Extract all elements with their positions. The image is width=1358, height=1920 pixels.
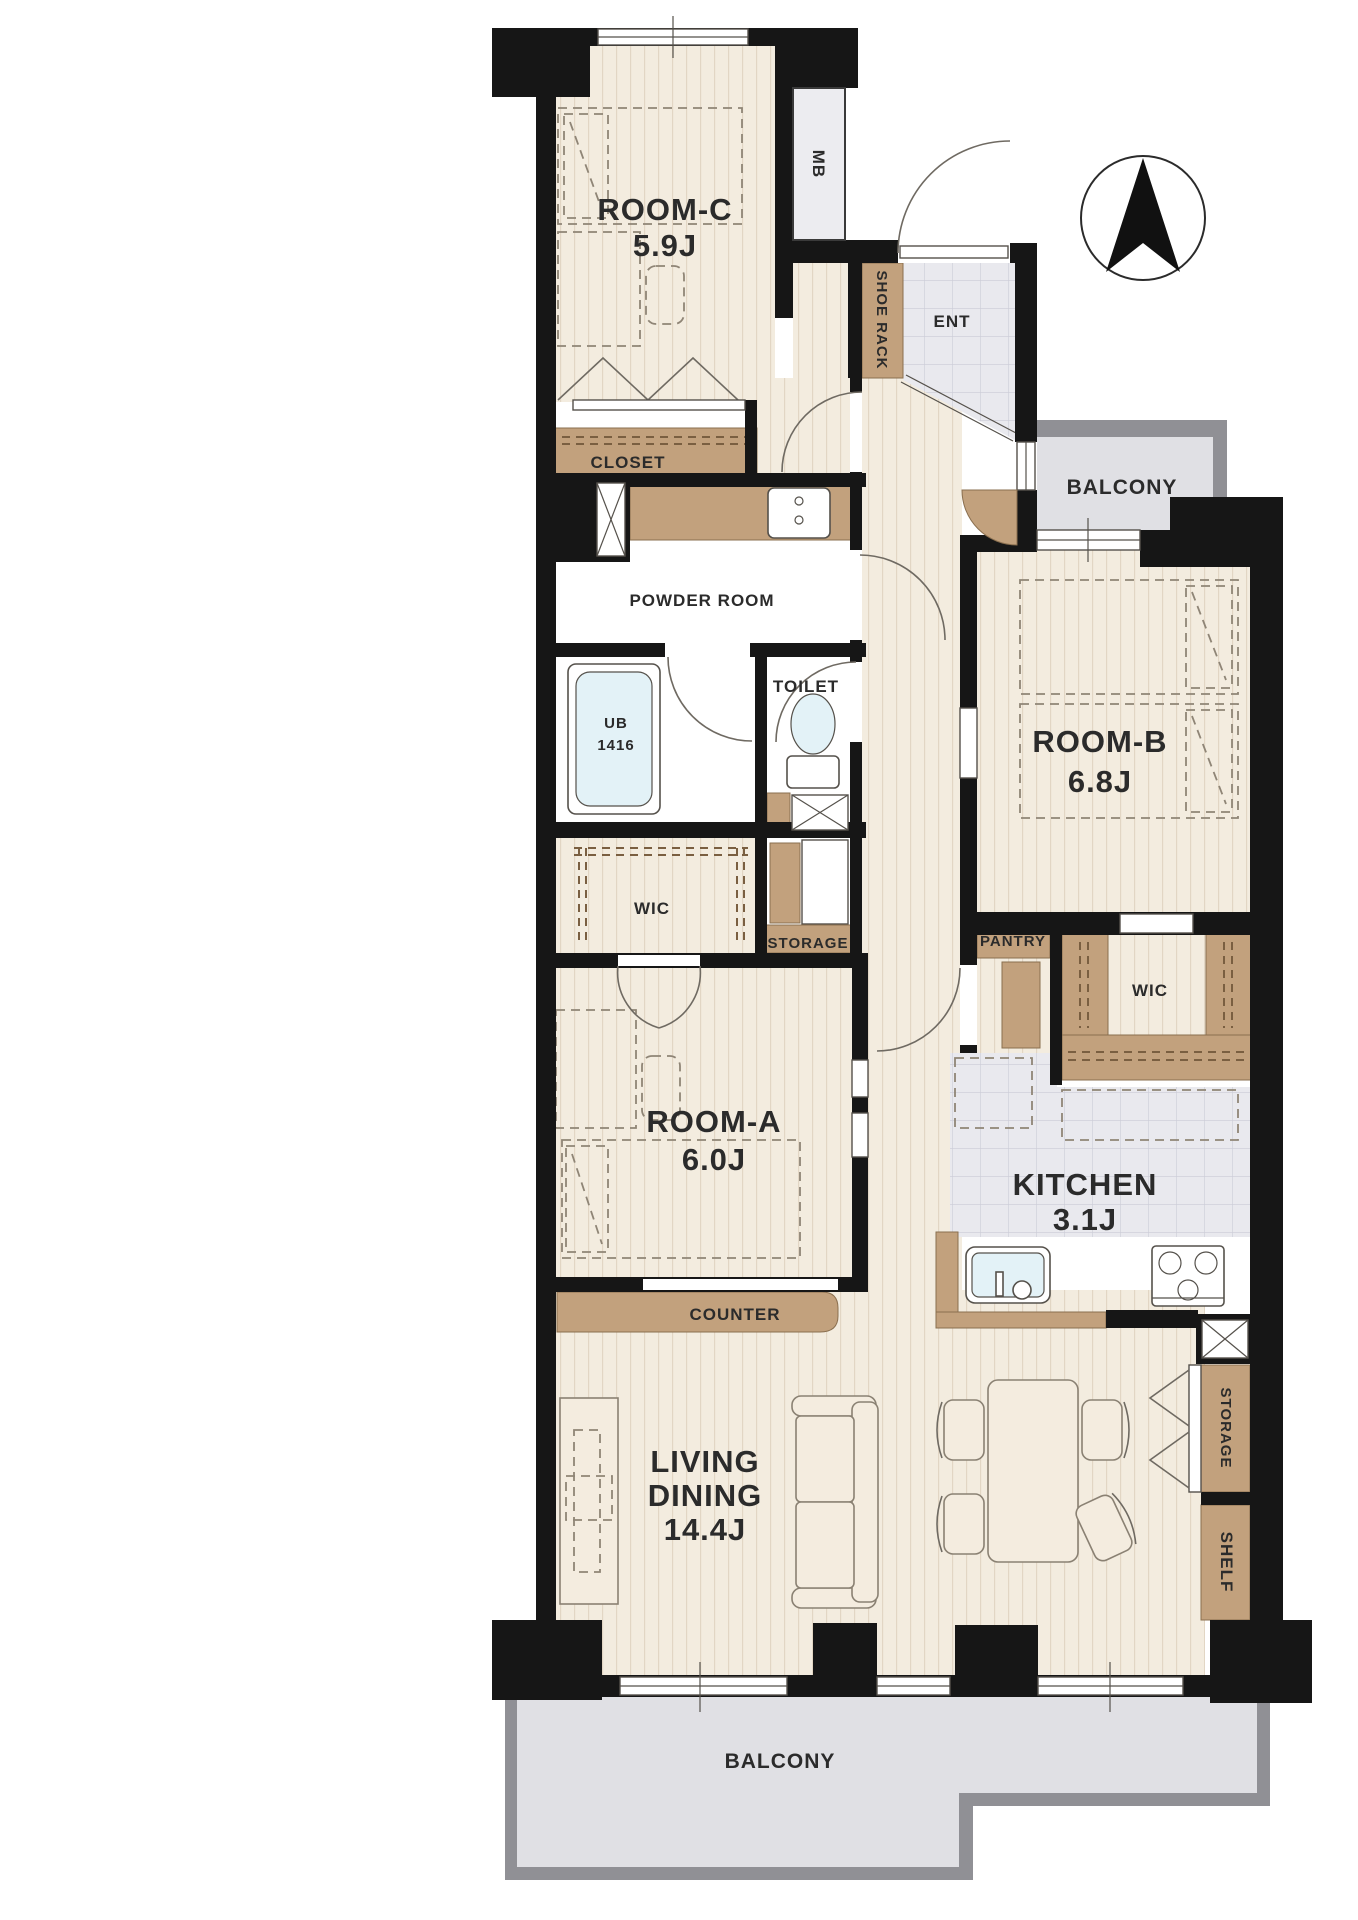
window-ld-2: [877, 1677, 950, 1695]
room-a-label: ROOM-A: [646, 1104, 781, 1139]
balcony-bottom: [517, 1697, 1257, 1867]
pantry-shelf: [1002, 962, 1040, 1048]
powder-room-label: POWDER ROOM: [629, 591, 774, 610]
pillar: [1210, 1620, 1312, 1703]
balcony-right-label: BALCONY: [1067, 476, 1178, 499]
corridor-floor: [856, 378, 962, 1310]
storage-a-label: STORAGE: [768, 935, 849, 952]
entry-door: [898, 243, 1010, 263]
dining-table: [988, 1380, 1078, 1562]
sofa: [792, 1396, 878, 1608]
pillar: [813, 1623, 877, 1697]
kitchen-duct-box: [1202, 1320, 1248, 1358]
vanity-basin: [768, 488, 830, 538]
counter-label: COUNTER: [689, 1305, 780, 1324]
wic-b-bottom-shelf: [1062, 1035, 1252, 1080]
closet-label: CLOSET: [591, 453, 666, 472]
balcony-right-border: [1037, 420, 1227, 437]
wic-b-right-shelf: [1206, 918, 1252, 1035]
dining-label: DINING: [648, 1478, 763, 1513]
pantry-label: PANTRY: [980, 933, 1046, 950]
dining-chair: [937, 1400, 984, 1460]
stove: [1152, 1246, 1224, 1306]
tv-board: [560, 1398, 618, 1604]
entry-door-swing: [898, 141, 1010, 253]
room-b-label: ROOM-B: [1032, 724, 1167, 759]
hall-strip-floor: [793, 263, 850, 383]
toilet-duct-box: [792, 795, 848, 830]
floor-plan: ROOM-C 5.9J ROOM-B 6.8J ROOM-A 6.0J LIVI…: [0, 0, 1358, 1920]
shelf-label: SHELF: [1217, 1532, 1236, 1593]
kitchen-counter-cap: [936, 1232, 958, 1318]
toilet-fixture: [787, 694, 839, 788]
compass: [1081, 156, 1205, 280]
door-room-c-opening: [850, 392, 862, 472]
door-wic-b-opening: [1120, 914, 1193, 933]
door-wic-a-opening: [618, 955, 700, 966]
room-c-area: 5.9J: [633, 228, 697, 263]
living-dining-area: 14.4J: [664, 1512, 747, 1547]
living-label: LIVING: [650, 1444, 759, 1479]
door-room-b-slide: [960, 708, 977, 778]
ub-label: UB: [604, 715, 628, 732]
balcony-bottom-label: BALCONY: [725, 1750, 836, 1773]
room-c-label: ROOM-C: [597, 192, 732, 227]
room-b-area: 6.8J: [1068, 764, 1132, 799]
balcony-right-border2: [1213, 420, 1227, 503]
mb-label: MB: [809, 150, 828, 178]
kitchen-sink: [966, 1247, 1050, 1303]
pillar: [955, 1625, 1038, 1697]
closet-track: [573, 400, 745, 410]
room-a-area: 6.0J: [682, 1142, 746, 1177]
wic-b-label: WIC: [1132, 981, 1168, 1000]
dining-chair: [1082, 1400, 1129, 1460]
wic-b-left-shelf: [1062, 918, 1108, 1035]
door-pantry-opening: [960, 965, 977, 1045]
window-hall-balcony: [1017, 442, 1035, 490]
storage-a-open: [802, 840, 848, 924]
door-powder-opening: [850, 550, 862, 640]
kitchen-counter-return: [936, 1312, 1106, 1328]
counter-window: [643, 1279, 838, 1290]
kitchen-area: 3.1J: [1053, 1202, 1117, 1237]
room-c-nook-floor: [757, 378, 852, 477]
laundry-box: [597, 483, 625, 556]
toilet-label: TOILET: [773, 677, 839, 696]
door-bath-opening: [665, 643, 750, 657]
pillar: [1170, 497, 1283, 567]
shoe-rack-label: SHOE RACK: [873, 270, 890, 369]
door-toilet-opening: [850, 662, 862, 742]
ub-size-label: 1416: [597, 737, 634, 754]
kitchen-label: KITCHEN: [1013, 1167, 1158, 1202]
dining-chair: [937, 1494, 984, 1554]
storage-b-label: STORAGE: [1217, 1388, 1234, 1469]
floor-plan-page: ROOM-C 5.9J ROOM-B 6.8J ROOM-A 6.0J LIVI…: [0, 0, 1358, 1920]
ent-label: ENT: [934, 312, 971, 331]
storage-b-track: [1189, 1365, 1201, 1492]
storage-a-shelf: [770, 843, 800, 923]
wic-a-label: WIC: [634, 899, 670, 918]
